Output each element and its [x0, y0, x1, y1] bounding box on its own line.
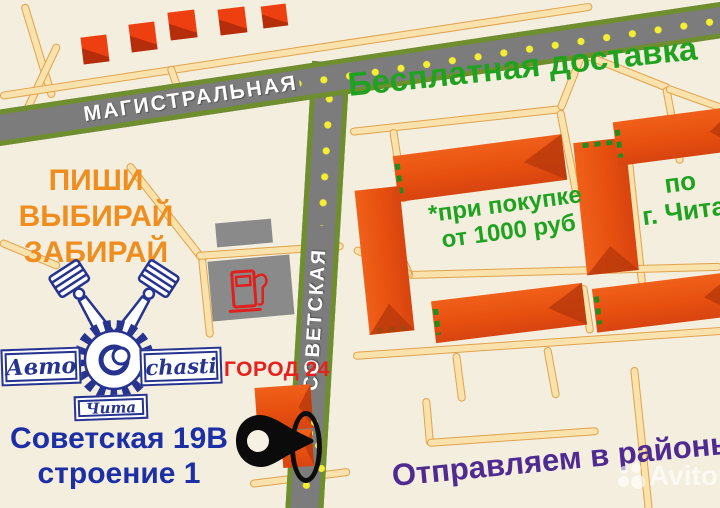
building: [261, 4, 288, 29]
street-segment: [353, 327, 720, 360]
building: [431, 283, 587, 343]
avito-dots-icon: [620, 466, 628, 474]
ad-map: СОВЕТСКАЯ МАГИСТРАЛЬНАЯ Бесплатная доста…: [0, 0, 720, 508]
avito-watermark: Avito: [612, 458, 720, 500]
avito-dots-icon: [631, 475, 645, 489]
building: [218, 6, 248, 35]
street-segment: [452, 352, 466, 402]
logo-banner-right: chasti: [139, 347, 222, 387]
avito-dots-icon: [631, 463, 641, 473]
building: [613, 106, 720, 166]
street-segment: [408, 263, 720, 279]
route-dots: [317, 76, 335, 226]
parking-lot-small: [215, 219, 273, 248]
building: [592, 271, 720, 332]
store-logo: Авто chasti Чита: [0, 252, 242, 422]
building: [80, 35, 109, 65]
street-segment: [543, 346, 560, 399]
logo-banner-city: Чита: [74, 394, 149, 422]
cta-line2: ВЫБИРАЙ: [0, 199, 192, 235]
cta-line1: ПИШИ: [0, 163, 192, 199]
logo-text-city: Чита: [86, 398, 137, 418]
map-pin-icon: [233, 412, 318, 474]
avito-text: Avito: [649, 460, 718, 492]
logo-text-left: Авто: [5, 352, 76, 380]
address-text: Советская 19В строение 1: [10, 421, 228, 491]
address-line1: Советская 19В: [10, 421, 228, 456]
building: [128, 22, 157, 53]
street-segment: [350, 105, 565, 136]
logo-text-right: chasti: [145, 353, 217, 380]
avito-dots-icon: [618, 476, 629, 487]
building: [167, 9, 197, 40]
logo-banner-left: Авто: [0, 347, 81, 387]
address-line2: строение 1: [10, 456, 228, 491]
